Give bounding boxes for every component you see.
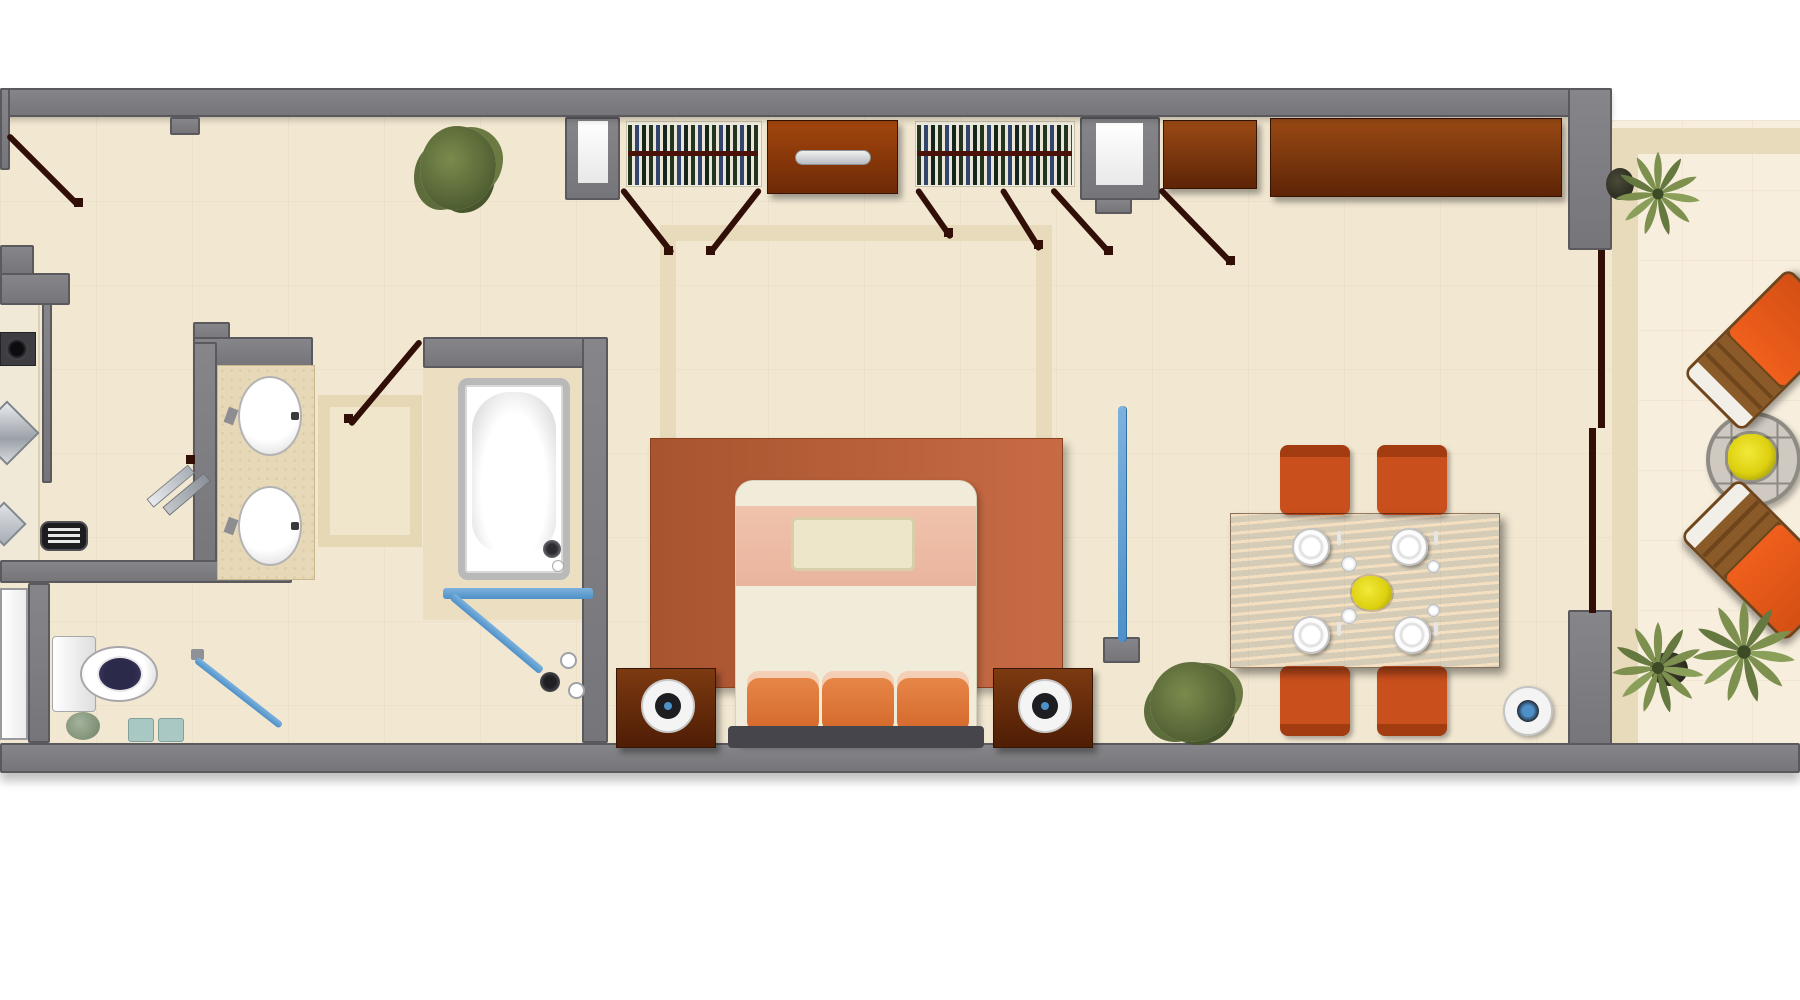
vanity-faucet-top-icon xyxy=(291,412,299,420)
entry-wall-stub-a xyxy=(0,245,34,275)
cutlery-top-left-icon xyxy=(1337,531,1341,545)
wall-top xyxy=(0,88,1612,117)
bed-cushion xyxy=(791,517,915,571)
headboard xyxy=(728,726,984,748)
sliding-door-panel-upper xyxy=(1598,250,1605,428)
lamp-right-led-icon xyxy=(1041,702,1049,710)
dining-chair-bottom-left xyxy=(1280,666,1350,736)
wall-niche-right-interior xyxy=(1096,123,1143,185)
entry-wall-stub-b xyxy=(0,273,70,305)
bed-pillow-center xyxy=(822,671,894,733)
glass-top-left xyxy=(1341,556,1357,572)
dining-chair-bottom-right xyxy=(1377,666,1447,736)
dining-chair-top-left xyxy=(1280,445,1350,515)
plate-top-left xyxy=(1292,528,1330,566)
king-bed xyxy=(735,480,977,745)
wall-right-lower xyxy=(1568,610,1612,750)
bathtub-handle-icon xyxy=(552,560,564,572)
plate-bottom-right xyxy=(1393,616,1431,654)
toilet-seat xyxy=(97,656,143,692)
wall-niche-right-stub xyxy=(1095,198,1132,214)
lamp-left-led-icon xyxy=(664,702,672,710)
plate-bottom-left xyxy=(1292,616,1330,654)
glass-bottom-left xyxy=(1341,608,1357,624)
bath-mat xyxy=(318,395,422,547)
cutlery-bottom-right-icon xyxy=(1434,622,1438,636)
shower-drain-icon xyxy=(540,672,560,692)
sliding-door-panel-lower xyxy=(1589,428,1596,613)
bathroom-door-hinge-icon xyxy=(344,414,353,423)
shower-head-icon xyxy=(568,682,585,699)
toilet-room-door-panel xyxy=(0,588,28,740)
floor-plan-canvas xyxy=(0,0,1800,1000)
hamper xyxy=(66,712,100,740)
tub-room-wall-top xyxy=(423,337,593,368)
living-door-hinge-icon xyxy=(1226,256,1235,265)
closet-rail-left xyxy=(628,151,758,156)
toaster-slot-3 xyxy=(48,540,80,543)
rack-knob-icon xyxy=(186,455,195,464)
closet-door-hinge-1-icon xyxy=(664,246,673,255)
slipper-left xyxy=(128,718,154,742)
closet-rail-right xyxy=(917,151,1072,156)
glass-bottom-right xyxy=(1427,604,1440,617)
palm-top xyxy=(1612,148,1704,240)
vanity-wall-left xyxy=(193,342,217,582)
closet-door-hinge-5-icon xyxy=(1104,246,1113,255)
wardrobe-credenza-left xyxy=(1163,120,1257,189)
wardrobe-credenza-right xyxy=(1270,118,1562,197)
wall-right-upper xyxy=(1568,88,1612,250)
kitchen-partition-wall xyxy=(42,303,52,483)
cooktop-burner-icon xyxy=(6,338,28,360)
vanity-faucet-bottom-icon xyxy=(291,522,299,530)
slipper-right xyxy=(158,718,184,742)
flower-centerpiece xyxy=(1352,576,1392,610)
shower-control-icon xyxy=(560,652,577,669)
floor-bowl-center-icon xyxy=(1517,700,1539,722)
wall-top-stub xyxy=(170,117,200,135)
palm-bottom-right xyxy=(1688,596,1800,708)
toilet-room-wall-left xyxy=(28,583,50,743)
closet-door-hinge-4-icon xyxy=(1034,240,1043,249)
wall-niche-left-interior xyxy=(578,121,608,183)
cutlery-top-right-icon xyxy=(1434,531,1438,545)
bedroom-divider-wall xyxy=(582,337,608,743)
entry-door-hinge-icon xyxy=(74,198,83,207)
glass-top-right xyxy=(1427,560,1440,573)
cutlery-bottom-left-icon xyxy=(1337,622,1341,636)
toaster-slot-2 xyxy=(48,534,80,537)
toaster-slot-1 xyxy=(48,528,80,531)
dresser-handle xyxy=(795,150,871,165)
closet-door-hinge-3-icon xyxy=(944,228,953,237)
closet-door-hinge-2-icon xyxy=(706,246,715,255)
bathtub-basin xyxy=(472,392,556,552)
glass-partition xyxy=(1118,406,1126,642)
wall-left-stub xyxy=(0,88,10,170)
bathtub-faucet-icon xyxy=(543,540,561,558)
plate-top-right xyxy=(1390,528,1428,566)
shower-screen xyxy=(443,588,593,599)
dining-chair-top-right xyxy=(1377,445,1447,515)
bed-pillow-left xyxy=(747,671,819,733)
bed-pillow-right xyxy=(897,671,969,733)
